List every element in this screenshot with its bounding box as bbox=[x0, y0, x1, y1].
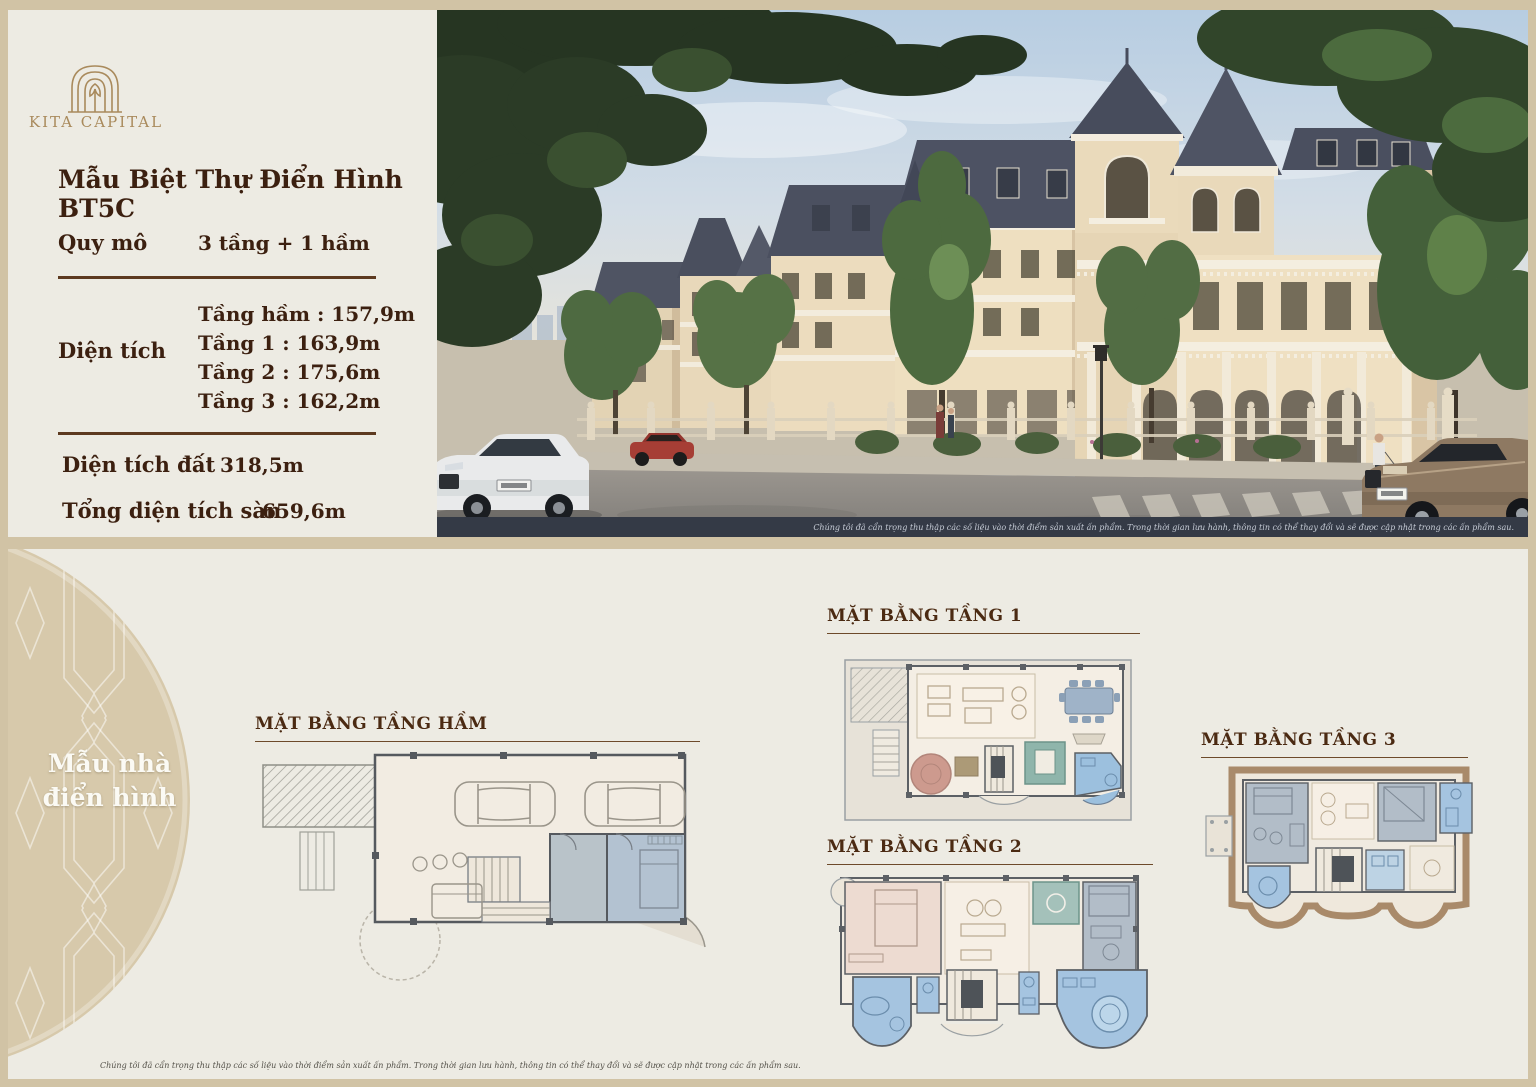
badge-title: Mẫu nhà điển hình bbox=[22, 747, 197, 815]
plan-basement-drawing bbox=[250, 742, 710, 987]
dien-tich-line: Tầng 3 : 162,2m bbox=[198, 387, 415, 416]
dien-tich-line: Tầng 2 : 175,6m bbox=[198, 358, 415, 387]
plan-title-basement: MẶT BẰNG TẦNG HẦM bbox=[255, 714, 700, 742]
villa-photo-art bbox=[437, 10, 1528, 537]
plan-title-floor2: MẶT BẰNG TẦNG 2 bbox=[827, 837, 1153, 865]
label-dien-tich-dat: Diện tích đất bbox=[62, 452, 215, 477]
value-quy-mo: 3 tầng + 1 hầm bbox=[198, 231, 370, 255]
brand-name: KITA CAPITAL bbox=[26, 113, 166, 131]
divider-line bbox=[58, 432, 376, 435]
label-tong-dien-tich-san: Tổng diện tích sàn bbox=[62, 498, 281, 523]
dien-tich-values: Tầng hầm : 157,9m Tầng 1 : 163,9m Tầng 2… bbox=[198, 300, 415, 416]
plan-floor2-drawing bbox=[823, 866, 1168, 1061]
dien-tich-line: Tầng 1 : 163,9m bbox=[198, 329, 415, 358]
value-dien-tich-dat: 318,5m bbox=[220, 453, 304, 477]
villa-photo: Chúng tôi đã cẩn trọng thu thập các số l… bbox=[437, 10, 1528, 537]
page-title: Mẫu Biệt Thự Điển Hình BT5C bbox=[58, 165, 418, 223]
label-dien-tich: Diện tích bbox=[58, 338, 166, 363]
divider-line bbox=[58, 276, 376, 279]
photo-disclaimer-text: Chúng tôi đã cẩn trọng thu thập các số l… bbox=[813, 523, 1514, 532]
footer-disclaimer: Chúng tôi đã cẩn trọng thu thập các số l… bbox=[100, 1061, 801, 1070]
photo-disclaimer-band: Chúng tôi đã cẩn trọng thu thập các số l… bbox=[437, 517, 1528, 537]
brochure-page: KITA CAPITAL Mẫu Biệt Thự Điển Hình BT5C… bbox=[0, 0, 1536, 1087]
plan-floor3-drawing bbox=[1198, 756, 1498, 936]
dien-tich-line: Tầng hầm : 157,9m bbox=[198, 300, 415, 329]
plan-title-floor1: MẶT BẰNG TẦNG 1 bbox=[827, 606, 1140, 634]
value-tong-dien-tich-san: 659,6m bbox=[262, 499, 346, 523]
label-quy-mo: Quy mô bbox=[58, 230, 147, 255]
plan-floor1-drawing bbox=[833, 638, 1143, 833]
floor-plans-section: Mẫu nhà điển hình MẶT BẰNG TẦNG HẦM MẶT … bbox=[8, 549, 1528, 1079]
badge-line2: điển hình bbox=[22, 781, 197, 815]
plan-title-floor3: MẶT BẰNG TẦNG 3 bbox=[1201, 730, 1468, 758]
info-panel: KITA CAPITAL Mẫu Biệt Thự Điển Hình BT5C… bbox=[8, 10, 437, 537]
kita-capital-arch-logo-icon bbox=[66, 62, 124, 114]
badge-line1: Mẫu nhà bbox=[22, 747, 197, 781]
